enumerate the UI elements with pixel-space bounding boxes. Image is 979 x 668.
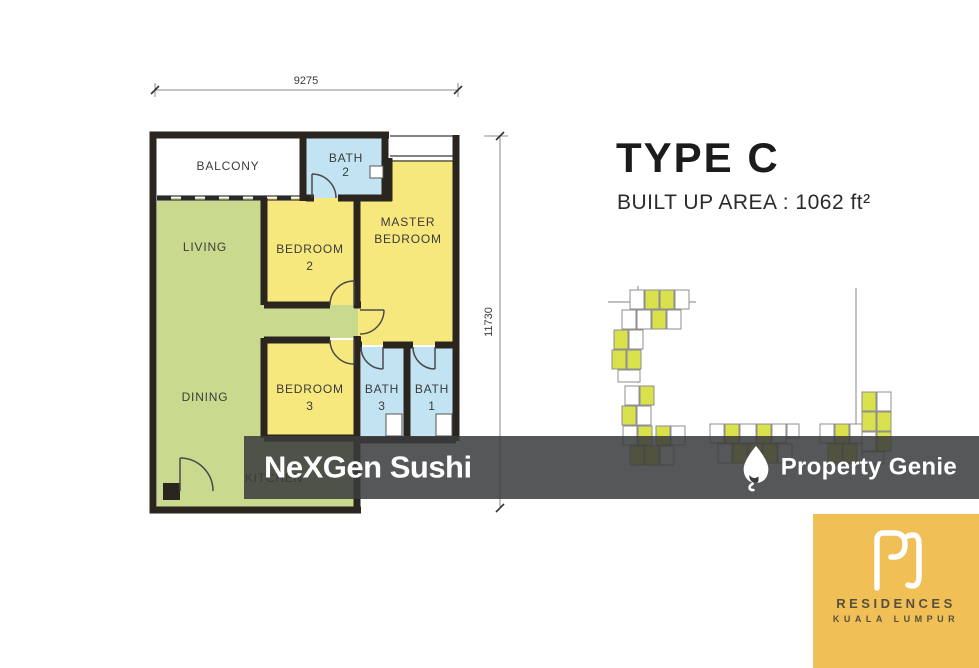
bath1-wc — [436, 414, 452, 436]
room-label-bath3-num: 3 — [378, 399, 385, 413]
dimension-right-label: 11730 — [483, 307, 495, 337]
rc-monogram-icon — [870, 528, 922, 592]
room-label-bath2: BATH — [329, 151, 363, 165]
room-label-bedroom2: BEDROOM — [276, 242, 344, 256]
room-label-bath1: BATH — [415, 382, 449, 396]
room-label-dining: DINING — [182, 390, 229, 404]
room-label-bedroom3: BEDROOM — [276, 382, 344, 396]
genie-flame-icon — [741, 444, 771, 491]
floor-plan-page: BALCONY BATH 2 MASTER BEDROOM BEDROOM 2 … — [0, 0, 979, 668]
bath2-basin — [370, 166, 383, 178]
bath3-wc — [386, 414, 402, 436]
nexgen-watermark-text: NeXGen Sushi — [264, 449, 472, 485]
property-genie-watermark: Property Genie — [741, 444, 957, 491]
residences-logo: RESIDENCES KUALA LUMPUR — [813, 514, 979, 668]
watermark-band: NeXGen Sushi Property Genie — [244, 436, 979, 499]
room-label-master-2: BEDROOM — [374, 232, 442, 246]
key-plan-cluster-top — [612, 290, 689, 382]
room-label-balcony: BALCONY — [197, 159, 260, 173]
room-label-master: MASTER — [381, 215, 436, 229]
built-up-area-label: BUILT UP AREA : 1062 ft² — [617, 191, 871, 215]
property-genie-text: Property Genie — [781, 454, 957, 482]
room-label-bedroom2-num: 2 — [306, 259, 313, 273]
room-label-bath3: BATH — [365, 382, 399, 396]
logo-city-text: KUALA LUMPUR — [813, 614, 979, 624]
room-label-bath1-num: 1 — [428, 399, 435, 413]
room-label-living: LIVING — [183, 240, 227, 254]
room-corridor — [262, 305, 360, 338]
room-label-bedroom3-num: 3 — [306, 399, 313, 413]
dimension-top-label: 9275 — [294, 75, 318, 87]
room-label-bath2-num: 2 — [342, 165, 349, 179]
logo-residences-text: RESIDENCES — [813, 596, 979, 611]
entry-step-wall — [163, 483, 180, 500]
type-heading: TYPE C — [616, 134, 780, 182]
